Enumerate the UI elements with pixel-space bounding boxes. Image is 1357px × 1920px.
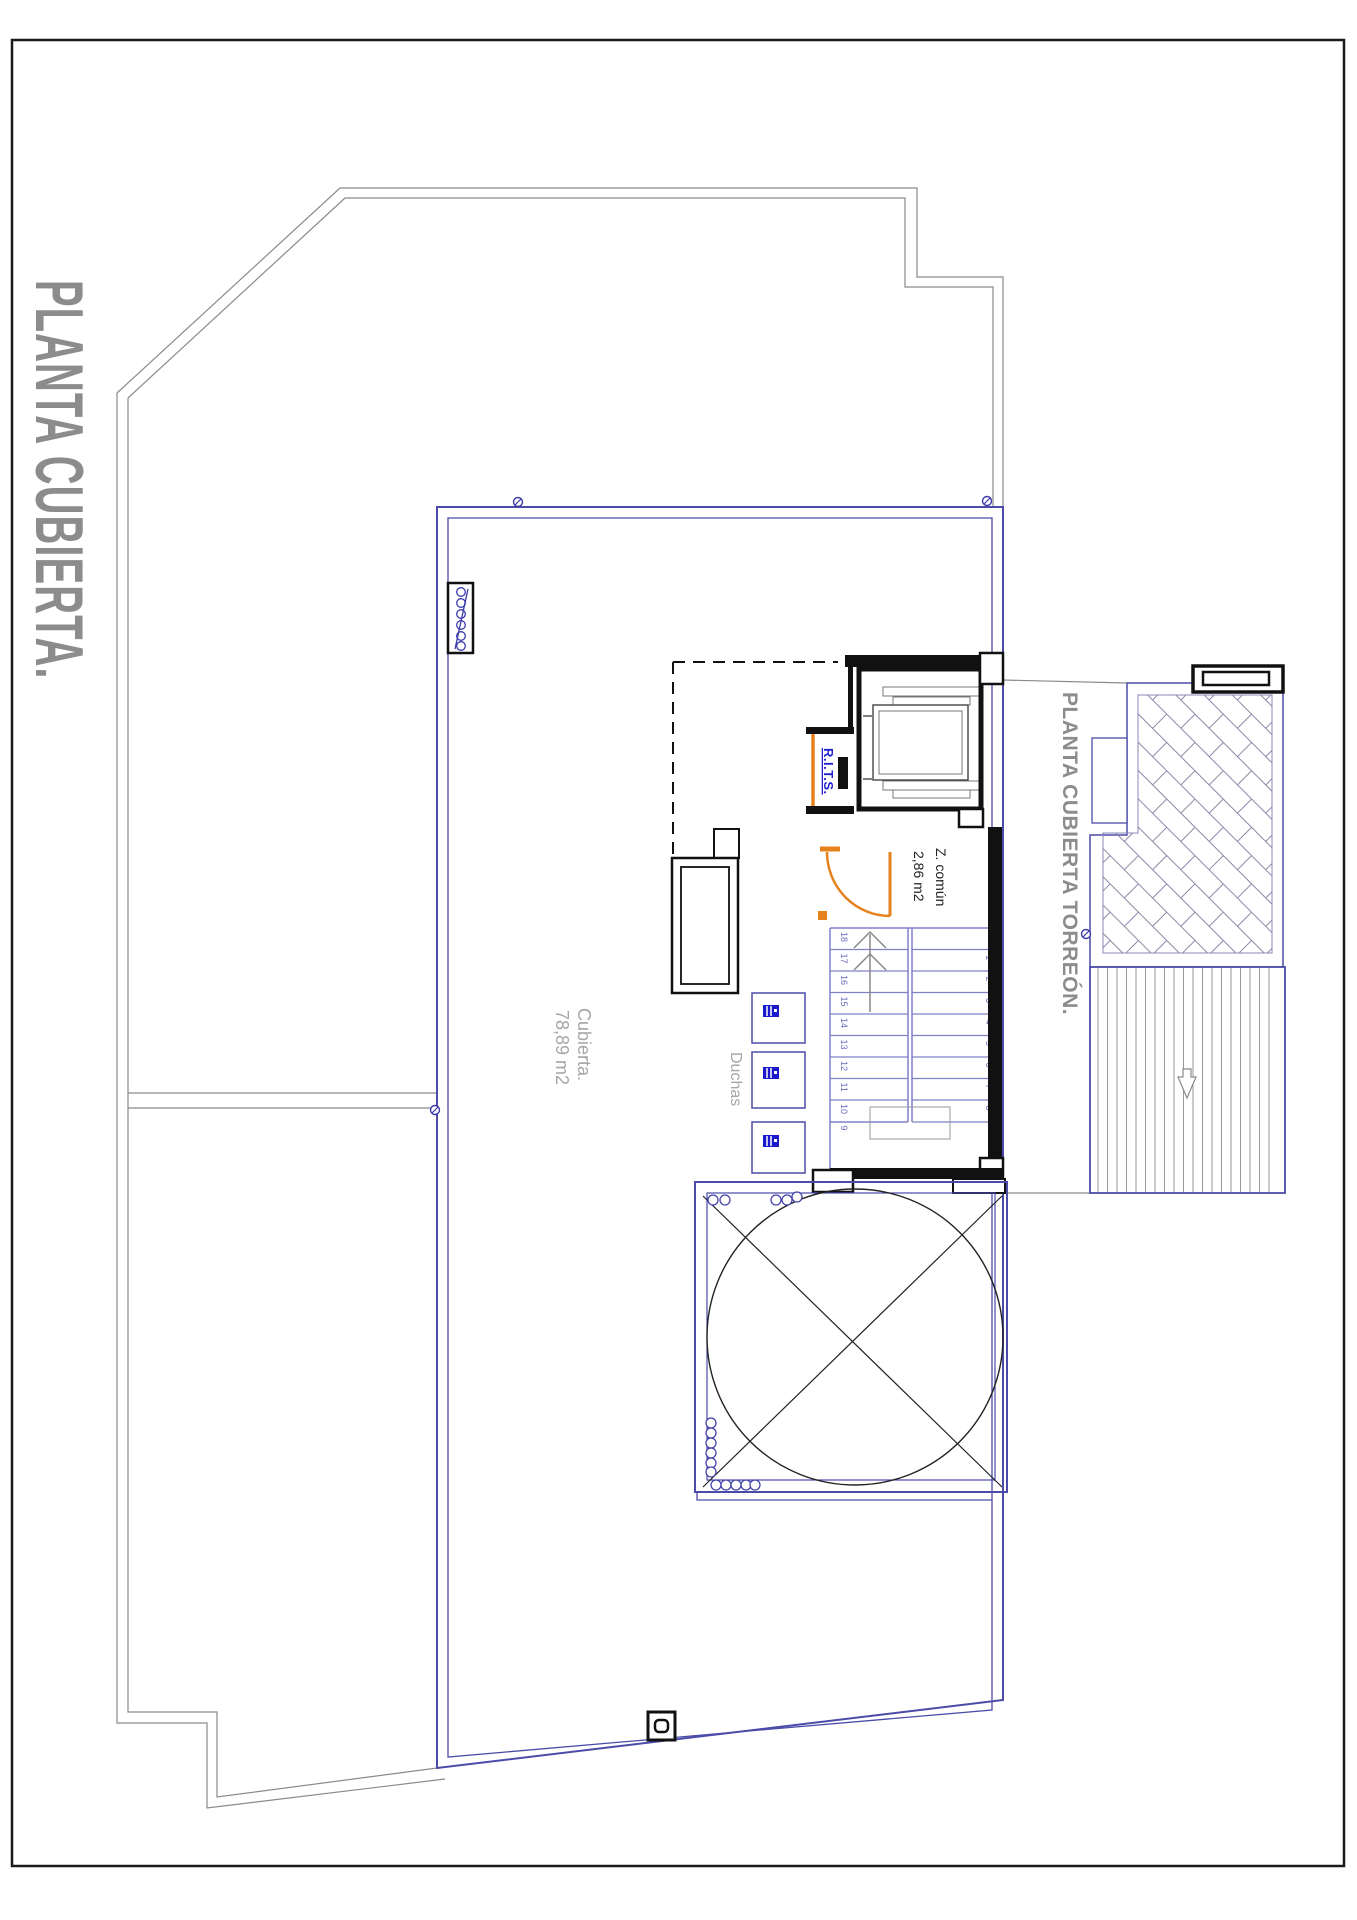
torreon-title: PLANTA CUBIERTA TORREÓN. xyxy=(1058,692,1082,1015)
stair-treads xyxy=(830,950,988,1123)
elevator-core xyxy=(845,653,1003,827)
site-outline xyxy=(117,188,1127,1808)
stair-number: 11 xyxy=(839,1083,849,1092)
parapet-vent-box xyxy=(448,583,473,653)
shower-cubicles xyxy=(752,993,805,1173)
stair-direction-arrow xyxy=(854,932,886,1012)
cross-brace xyxy=(703,1196,1002,1487)
door-symbol xyxy=(818,849,890,920)
floor-plan-canvas: R.I.T.S. 181716151413121110912345678 xyxy=(0,0,1357,1920)
elevator-doors xyxy=(883,687,980,798)
roof-area-value: 78,89 m2 xyxy=(552,1010,572,1085)
stair-number: 13 xyxy=(839,1040,849,1050)
skylight-structure xyxy=(672,829,739,993)
stair-number: 12 xyxy=(839,1061,849,1071)
common-zone-label: Z. común xyxy=(933,848,949,906)
stair-number: 18 xyxy=(839,932,849,942)
showers-label: Duchas xyxy=(727,1052,744,1106)
stair-number: 17 xyxy=(839,954,849,964)
parapet-drain-box xyxy=(648,1712,675,1740)
machinery-pad xyxy=(695,1182,1007,1492)
rits-closet: R.I.T.S. xyxy=(806,727,854,814)
elevator-car xyxy=(873,705,968,780)
paved-roof-hatch xyxy=(1103,695,1272,953)
rits-label: R.I.T.S. xyxy=(821,748,836,795)
stair-number: 9 xyxy=(839,1126,849,1131)
roof-divider-line xyxy=(128,1093,437,1108)
stair-number: 16 xyxy=(839,975,849,985)
stair-landing xyxy=(870,1107,950,1139)
roof-area-label: Cubierta. xyxy=(574,1008,594,1081)
guide-rails xyxy=(863,716,872,779)
common-zone-area: 2,86 m2 xyxy=(911,851,927,902)
stair-number: 14 xyxy=(839,1018,849,1028)
rits-equipment xyxy=(838,757,848,789)
stair-number: 10 xyxy=(839,1104,849,1114)
torreon-roof xyxy=(1090,666,1285,1193)
page-title: PLANTA CUBIERTA. xyxy=(21,280,97,680)
staircase: 181716151413121110912345678 xyxy=(813,827,1005,1193)
stair-number: 15 xyxy=(839,997,849,1007)
